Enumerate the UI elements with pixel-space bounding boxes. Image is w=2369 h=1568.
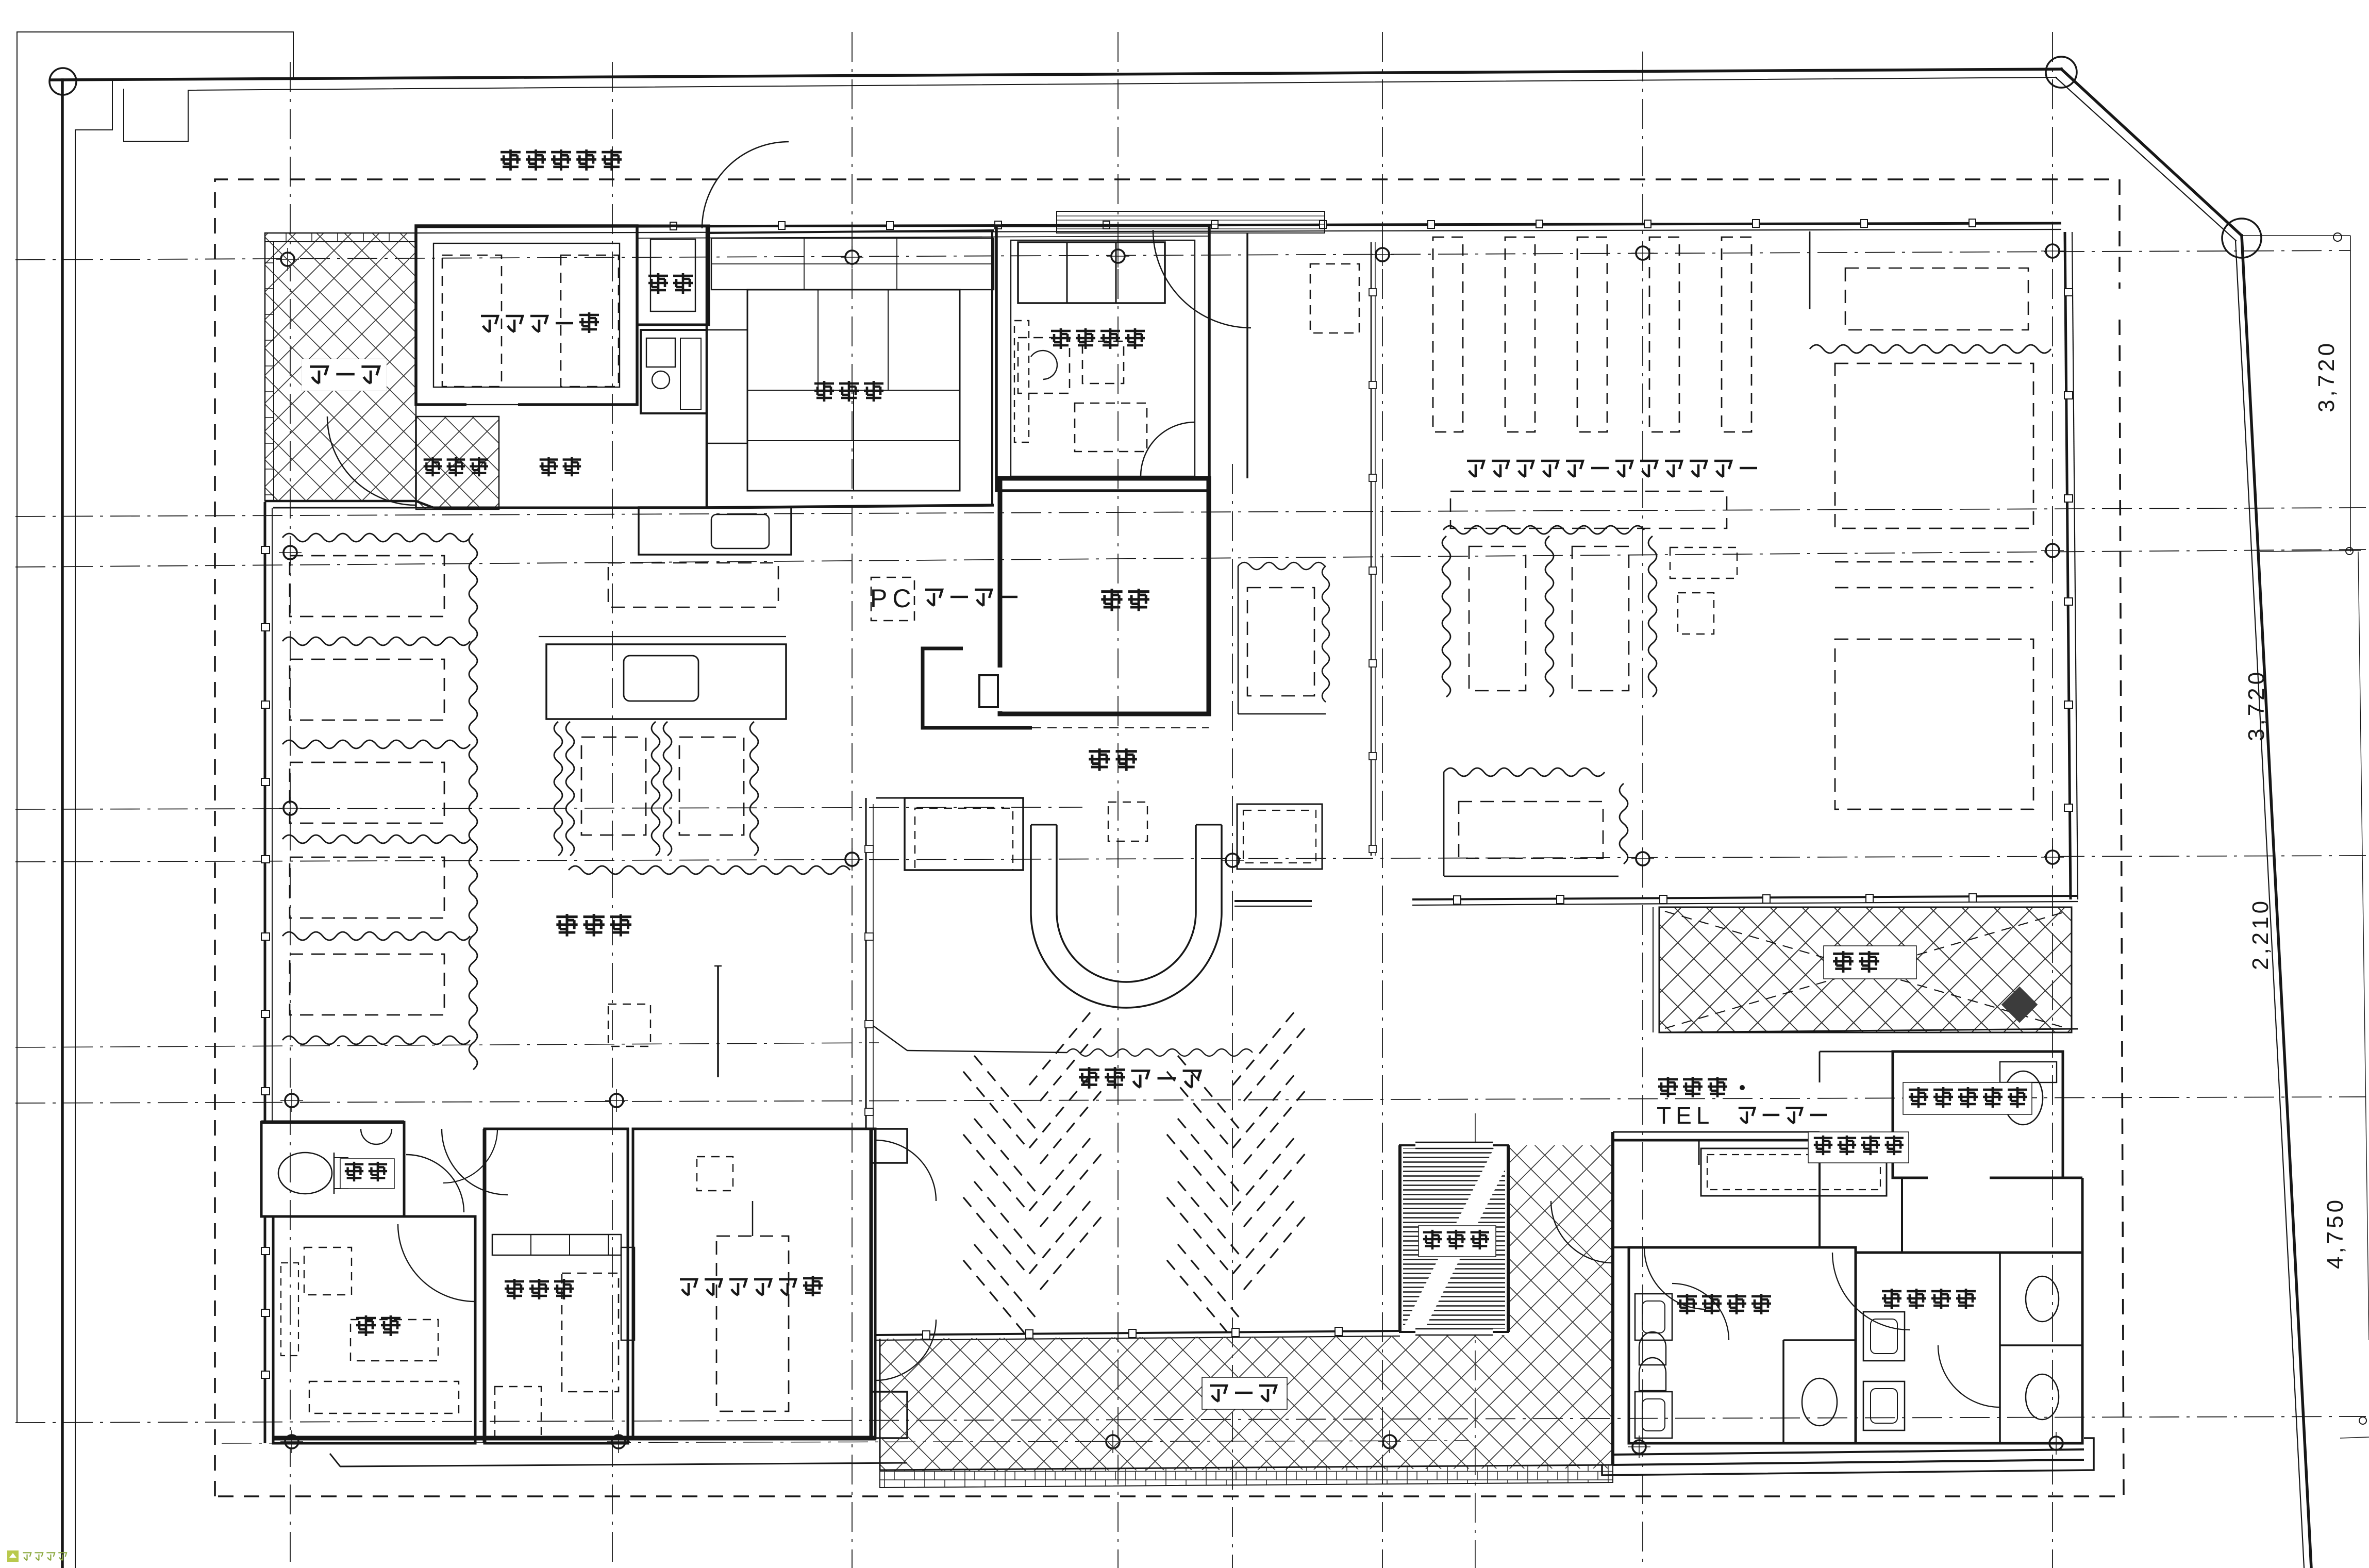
svg-text:4,750: 4,750	[2323, 1197, 2348, 1269]
svg-text:3,720: 3,720	[2244, 669, 2269, 741]
svg-text:2,210: 2,210	[2248, 898, 2273, 970]
svg-text:PC: PC	[870, 584, 916, 613]
svg-text:TEL: TEL	[1657, 1102, 1714, 1129]
svg-text:3,720: 3,720	[2314, 340, 2339, 412]
